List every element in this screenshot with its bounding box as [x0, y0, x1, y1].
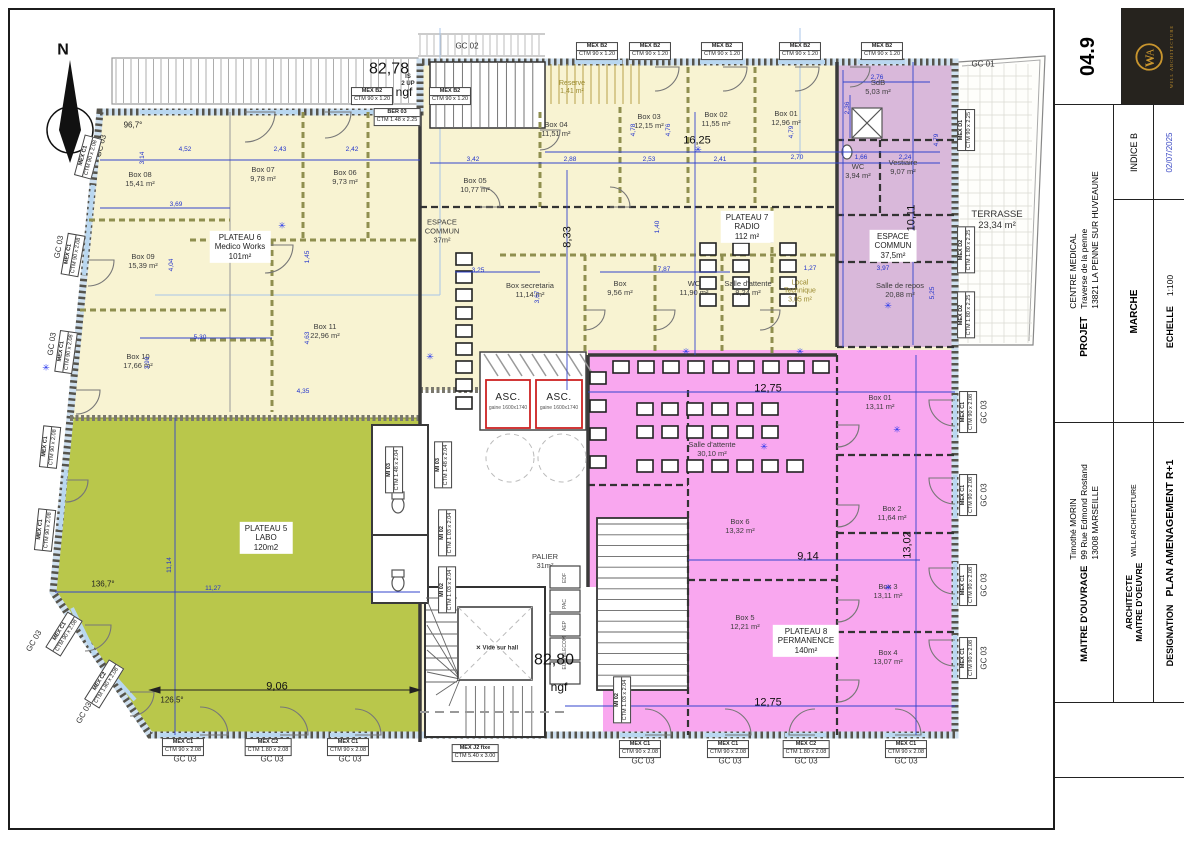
projet-addr2: 13821 LA PENNE SUR HUVEAUNE	[1090, 171, 1100, 308]
title-block: 04.9 W A Will Architecture PROJET CENT	[1053, 8, 1182, 830]
indice-cell: INDICE B	[1113, 105, 1153, 200]
moa-addr1: 99 Rue Edmond Rostand	[1079, 464, 1089, 559]
floor-plan-canvas	[0, 0, 1190, 841]
terrace-outline	[958, 56, 1045, 345]
top-stair	[430, 62, 545, 128]
balcony-rail	[112, 58, 418, 104]
projet-name: CENTRE MEDICAL	[1068, 171, 1078, 308]
echelle-value: 1:100	[1165, 275, 1175, 296]
empty-cell-2	[1055, 778, 1184, 830]
marche-cell: MARCHE	[1113, 200, 1153, 423]
echelle-cell: ECHELLE 1:100	[1153, 200, 1184, 423]
svg-text:A: A	[1145, 48, 1156, 56]
elevator-asc-1	[486, 380, 530, 428]
architecte-label1: ARCHITECTE	[1124, 563, 1134, 642]
architecte-label2: MAITRE D'OEUVRE	[1134, 563, 1144, 642]
marche-label: MARCHE	[1129, 290, 1140, 334]
zone-green-plateau5	[54, 418, 420, 735]
projet-label: PROJET	[1079, 317, 1090, 357]
architecte-cell: ARCHITECTE MAITRE D'OEUVRE WILL ARCHITEC…	[1113, 423, 1153, 703]
logo-cell: W A Will Architecture	[1121, 8, 1184, 105]
designation-label: DESIGNATION	[1165, 605, 1175, 667]
indice-value: INDICE B	[1129, 133, 1139, 172]
logo-firm-name: Will Architecture	[1169, 25, 1174, 88]
moa-label: MAITRE D'OUVRAGE	[1079, 566, 1090, 662]
moa-addr2: 13008 MARSEILLE	[1090, 464, 1100, 559]
designation-value: PLAN AMENAGEMENT R+1	[1164, 460, 1176, 597]
elevator-asc-2	[536, 380, 582, 428]
drawing-sheet: NBox 08 15,41 m²Box 07 9,78 m²Box 06 9,7…	[0, 0, 1190, 841]
architecte-value: WILL ARCHITECTURE	[1131, 484, 1138, 556]
moa-name: Timothé MORIN	[1068, 464, 1078, 559]
moa-cell: MAITRE D'OUVRAGE Timothé MORIN 99 Rue Ed…	[1055, 423, 1113, 703]
technical-closets	[550, 566, 580, 684]
zone-purple-espace	[837, 62, 955, 347]
designation-cell: DESIGNATION PLAN AMENAGEMENT R+1	[1153, 423, 1184, 703]
projet-cell: PROJET CENTRE MEDICAL Traverse de la pen…	[1055, 105, 1113, 423]
north-arrow	[47, 60, 93, 163]
echelle-label: ECHELLE	[1165, 306, 1175, 348]
empty-cell-1	[1055, 703, 1184, 778]
date-cell: 02/07/2025	[1153, 105, 1184, 200]
sheet-number: 04.9	[1077, 37, 1100, 76]
vide-sur-hall	[458, 607, 532, 680]
revision-date: 02/07/2025	[1165, 132, 1174, 172]
wa-logo-icon: W A	[1133, 40, 1167, 74]
sheet-number-cell: 04.9	[1055, 8, 1121, 105]
projet-addr1: Traverse de la penne	[1079, 171, 1089, 308]
